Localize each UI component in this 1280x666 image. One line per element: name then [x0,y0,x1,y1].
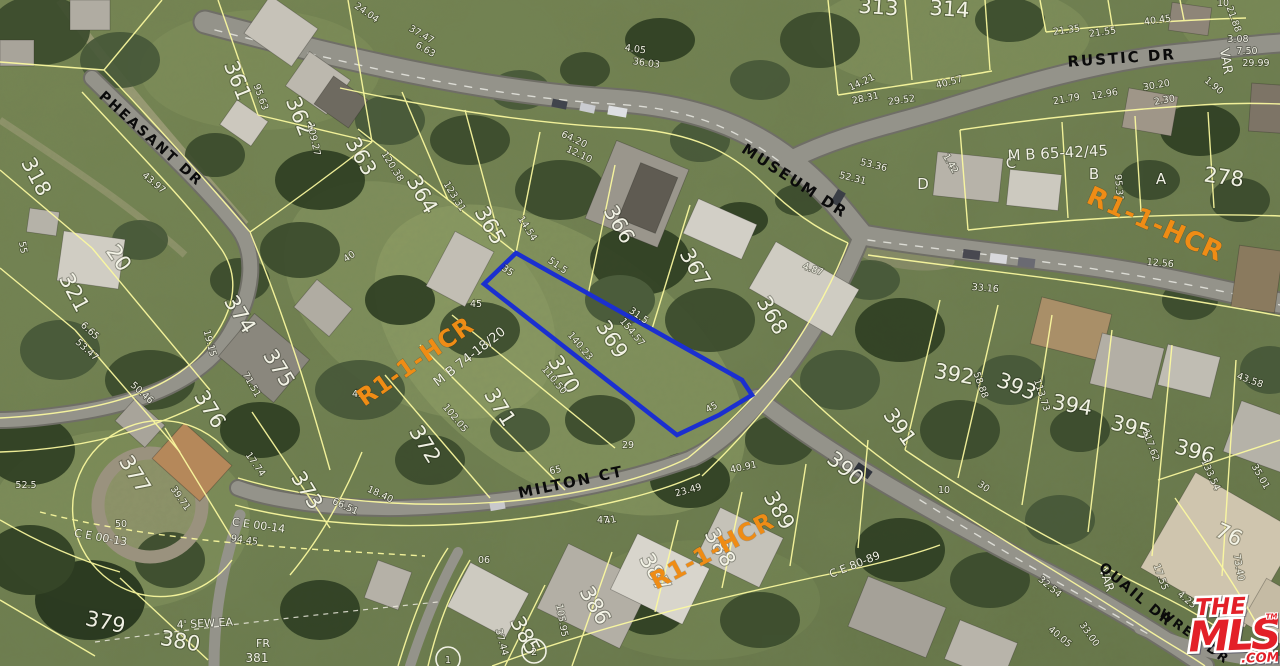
mls-logo-tm: TM [1266,612,1278,620]
dimension-label: 45 [470,299,482,310]
map-annotation-label: 381 [246,651,269,665]
dimension-label: 7.50 [1236,46,1257,57]
map-annotation-label: FR [256,637,270,650]
mls-logo-com: .COM [1241,650,1278,666]
parcel-letter-label: D [917,175,929,193]
dimension-label: 29 [622,440,634,451]
parcel-letter-label: A [1156,170,1167,188]
dimension-label: 47 [597,515,609,526]
dimension-label: 29.99 [1242,58,1269,69]
dimension-label: 52.5 [15,480,36,491]
dimension-label: 06 [478,555,490,566]
aerial-photo-scene: 3182032136136236336436536636736836937037… [0,0,1280,666]
parcel-marker-number: 1 [445,655,451,666]
lot-number-label: 313 [858,0,900,20]
dimension-label: 3.08 [1227,34,1248,45]
aerial-parcel-map: 3182032136136236336436536636736836937037… [0,0,1280,666]
lot-number-label: 314 [929,0,971,22]
parcel-marker-number: 2 [531,647,537,658]
mls-logo: THE MLS TM .COM [1182,586,1278,666]
dimension-label: 50 [115,519,127,530]
dimension-label: 55 [16,241,29,255]
dimension-label: 10 [938,485,950,496]
